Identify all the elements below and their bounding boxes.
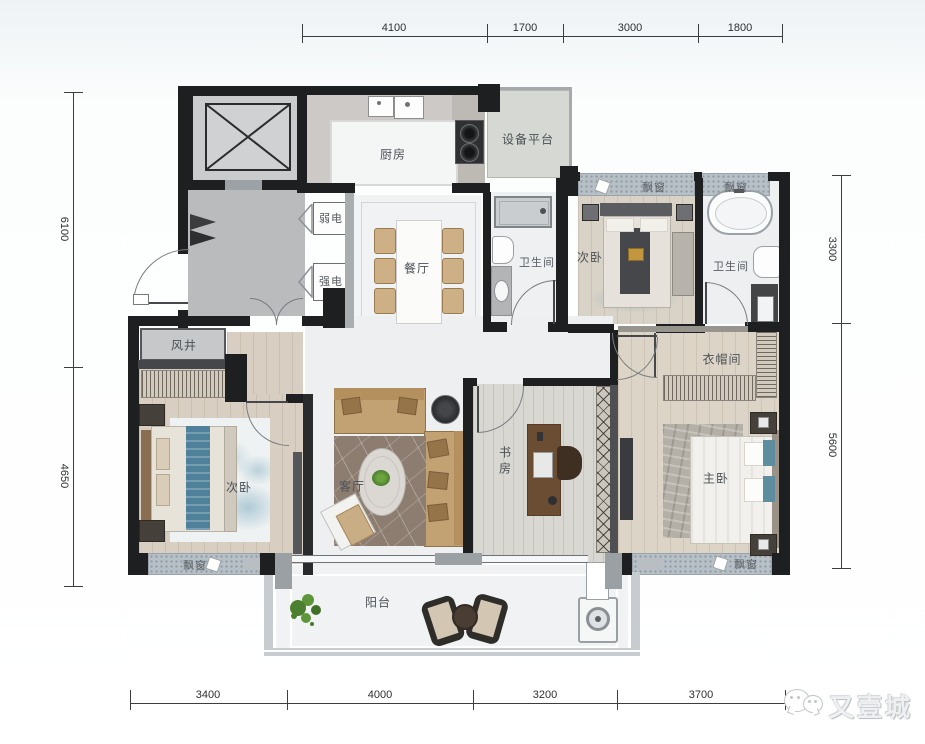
room-label-balcony: 阳台 (365, 594, 391, 611)
dimension-tick (617, 690, 618, 710)
nightstand (582, 204, 599, 221)
wall-segment (772, 553, 790, 575)
wall-segment (695, 178, 703, 326)
dimension-tick (302, 24, 303, 43)
dimension-tick (64, 92, 83, 93)
dining-chair (442, 288, 464, 314)
dining-chair (442, 228, 464, 254)
bed-pillow (640, 218, 668, 232)
dining-chair (374, 228, 396, 254)
dimension-value: 4100 (382, 22, 406, 34)
sliding-window-track (292, 555, 435, 563)
bed-pillow-accent (763, 440, 775, 466)
room-label-weak-current: 弱电 (319, 210, 343, 226)
wall-dark (610, 385, 618, 562)
box-swing-icon (298, 266, 313, 298)
kitchen-sink (394, 96, 424, 119)
table-plant (372, 470, 390, 486)
cloakroom-shelf (756, 330, 777, 398)
kitchen-sink (368, 96, 394, 117)
nightstand (676, 204, 693, 221)
wall-thin (618, 326, 748, 332)
room-label-master: 主卧 (703, 470, 729, 487)
room-label-bedroom-top: 次卧 (577, 249, 603, 266)
pillar-gray (275, 553, 292, 589)
wall-segment (297, 86, 307, 190)
wall-segment (128, 553, 148, 575)
bay-window-label: 飘窗 (642, 179, 666, 195)
bubble-eye (814, 700, 817, 703)
wall-segment (183, 180, 225, 190)
stove-burner (460, 124, 479, 143)
dresser (672, 232, 694, 296)
dimension-tick (782, 24, 783, 43)
bed-pillow (156, 474, 170, 506)
wall-segment (556, 178, 568, 326)
wall-segment (483, 322, 507, 332)
cloakroom-door-leaf (617, 335, 657, 337)
elevator-door (225, 180, 262, 190)
dimension-value: 4000 (368, 689, 392, 701)
dimension-value: 1800 (728, 22, 752, 34)
wall-segment (483, 192, 491, 326)
platform-edge (500, 87, 572, 90)
pillar-gray (605, 553, 622, 589)
nightstand-lamp (758, 417, 769, 428)
dimension-tick (287, 690, 288, 710)
room-label-bathroom1: 卫生间 (519, 254, 555, 270)
bathtub-inner (715, 197, 767, 230)
dimension-tick (64, 586, 83, 587)
dimension-line-bottom (130, 703, 785, 704)
bathroom2-door-leaf (705, 282, 707, 324)
dimension-line-top (302, 36, 782, 37)
wall-thin (345, 193, 354, 328)
window-sill (638, 558, 662, 570)
wall-dark (303, 394, 313, 575)
bubble-eye (797, 696, 800, 699)
balcony-table-round (452, 604, 478, 630)
elevator-cross-icon (205, 103, 291, 171)
sofa-pillow (397, 397, 418, 415)
wall-segment (188, 316, 250, 326)
sofa-pillow (341, 397, 362, 415)
dimension-tick (698, 24, 699, 43)
bathroom1-door-leaf (553, 280, 555, 324)
balcony-rail-bottom (264, 648, 640, 656)
wall-segment (297, 86, 487, 95)
room-label-bedroom-left: 次卧 (226, 479, 252, 496)
tv-cabinet (293, 452, 302, 554)
wall-segment (523, 378, 612, 386)
bubble-eye (790, 696, 793, 699)
sofa-pillow (427, 438, 450, 458)
room-label-study: 书房 (497, 446, 514, 478)
dimension-value: 5600 (826, 433, 838, 457)
wall-segment (745, 322, 780, 332)
laptop (533, 452, 553, 478)
bath1-sink (494, 280, 509, 302)
desk-chair (557, 446, 582, 480)
wall-segment (323, 288, 347, 328)
balcony-plant (290, 600, 306, 616)
bed-runner (620, 228, 650, 294)
room-label-living: 客厅 (339, 478, 365, 495)
bath2-sink (757, 296, 774, 322)
side-table-round (431, 395, 460, 424)
dimension-tick (563, 24, 564, 43)
study-door-leaf (477, 386, 479, 432)
wall-segment (183, 86, 307, 96)
dimension-tick (64, 367, 83, 368)
dimension-value: 3200 (533, 689, 557, 701)
dining-chair (442, 258, 464, 284)
room-label-kitchen: 厨房 (380, 146, 406, 163)
dining-chair (374, 258, 396, 284)
sofa-pillow (427, 471, 449, 490)
wall-segment (478, 84, 500, 112)
dimension-tick (832, 323, 851, 324)
shower-head-dot (540, 208, 546, 214)
wall-segment (463, 378, 477, 386)
dimension-tick (130, 690, 131, 710)
wall-segment (463, 386, 473, 562)
toilet (753, 246, 780, 278)
dimension-tick (473, 690, 474, 710)
watermark-brand: 又壹城 (829, 688, 913, 724)
bed-pillow (606, 218, 634, 232)
room-label-dining: 餐厅 (404, 260, 430, 277)
room-label-cloakroom: 衣帽间 (702, 351, 741, 368)
box-swing-icon (298, 204, 313, 234)
dimension-tick (832, 175, 851, 176)
wall-segment (128, 316, 190, 326)
dimension-line-left (73, 92, 74, 586)
dimension-value: 6100 (58, 217, 70, 241)
toilet (492, 236, 514, 264)
balcony-rail-right (631, 572, 640, 652)
desk-phone (537, 432, 543, 441)
stove-burner (460, 143, 479, 162)
dimension-value: 3300 (826, 237, 838, 261)
bedroom-left-door-leaf (246, 401, 288, 403)
bay-window-label: 飘窗 (724, 179, 748, 195)
bed-pillow (156, 438, 170, 470)
room-label-equipment-platform: 设备平台 (502, 131, 554, 148)
lobby-floor (188, 190, 305, 316)
bed-pillow-accent (763, 476, 775, 502)
wall-segment (225, 354, 247, 402)
wall-segment (779, 172, 790, 575)
bubble-eye (808, 700, 811, 703)
faucet-dot (377, 101, 381, 105)
desk-mug (548, 496, 557, 505)
dimension-value: 3400 (196, 689, 220, 701)
room-label-strong-current: 强电 (319, 273, 343, 289)
dimension-tick (832, 568, 851, 569)
nightstand (139, 520, 165, 542)
bed-cushion (628, 248, 644, 261)
bay-window-label: 飘窗 (734, 556, 758, 572)
wall-segment (568, 324, 614, 333)
nightstand (139, 404, 165, 426)
dimension-value: 1700 (513, 22, 537, 34)
watermark: 又壹城 (783, 684, 913, 724)
wall-segment (178, 86, 188, 254)
room-label-wind-shaft: 风井 (171, 337, 197, 354)
entry-door-stop (133, 294, 149, 305)
bay-window-label: 飘窗 (183, 557, 207, 573)
wall-segment (297, 183, 355, 193)
dimension-line-right (841, 175, 842, 568)
sliding-window-track (482, 555, 588, 563)
floor-plan: 厨房 设备平台 弱电 强电 餐厅 卫生间 次卧 卫生间 飘窗 飘窗 风井 次卧 … (0, 0, 925, 744)
dimension-value: 3700 (689, 689, 713, 701)
wardrobe (141, 370, 227, 398)
sofa-pillow (427, 503, 449, 522)
bed-headboard (600, 203, 672, 216)
tv-cabinet (620, 438, 633, 520)
wall-dark (138, 360, 228, 369)
platform-edge (569, 87, 572, 175)
bed-headboard (141, 430, 151, 526)
bed-runner (186, 426, 210, 530)
dimension-value: 3000 (618, 22, 642, 34)
room-label-bathroom2: 卫生间 (713, 258, 749, 274)
pillar-gray (435, 553, 482, 565)
washer-drum-dot (595, 616, 601, 622)
bubble-tail (787, 706, 796, 715)
nightstand-lamp (758, 539, 769, 550)
balcony-rail-left (264, 572, 273, 652)
wardrobe (663, 375, 756, 401)
wechat-icon (783, 684, 825, 720)
faucet-dot (405, 102, 410, 107)
wall-segment (302, 316, 324, 326)
bookshelf (596, 386, 611, 553)
dining-chair (374, 288, 396, 314)
dimension-value: 4650 (58, 464, 70, 488)
dimension-tick (487, 24, 488, 43)
